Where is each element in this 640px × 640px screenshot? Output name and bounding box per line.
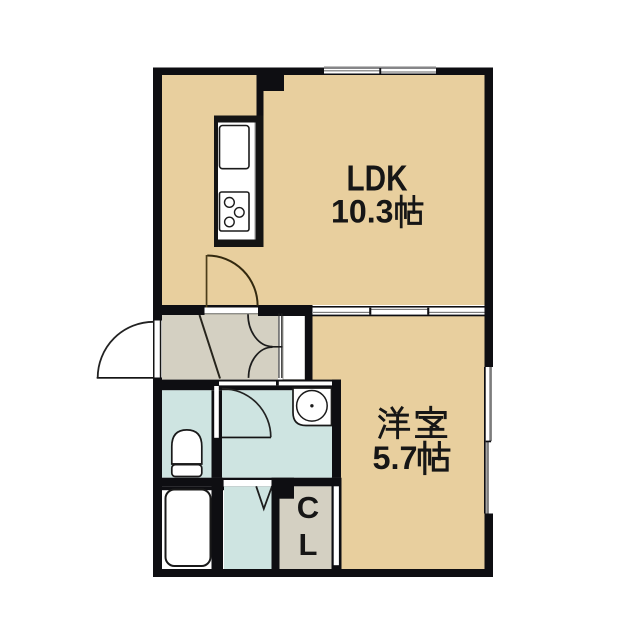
svg-text:10.3: 10.3 — [331, 193, 394, 229]
svg-text:L: L — [299, 527, 318, 562]
svg-text:5.7: 5.7 — [373, 440, 418, 476]
svg-text:C: C — [297, 490, 319, 525]
